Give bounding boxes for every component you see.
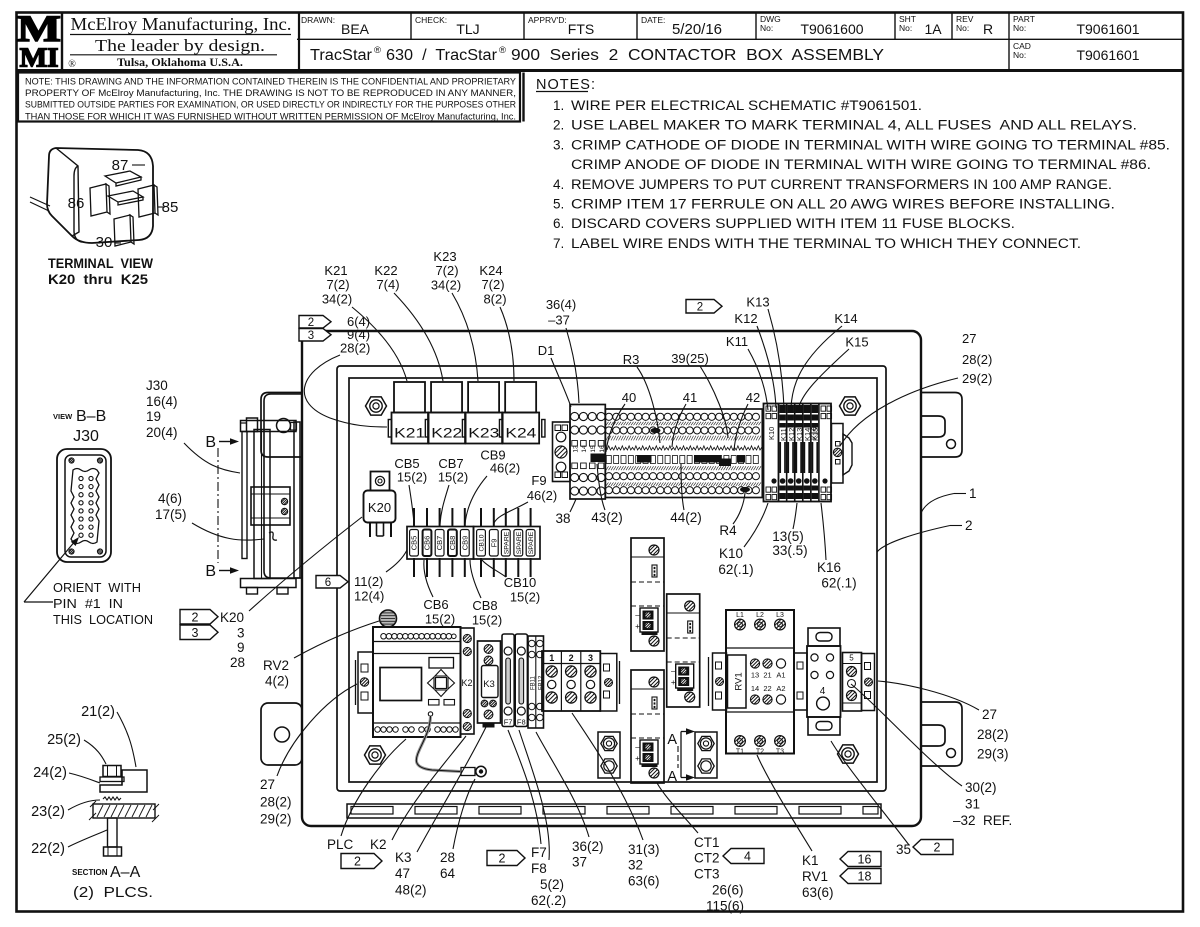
svg-text:1.: 1.: [553, 98, 564, 113]
svg-text:87: 87: [112, 157, 129, 174]
svg-text:14: 14: [751, 684, 759, 693]
svg-text:27: 27: [962, 331, 976, 346]
svg-text:FB11: FB11: [531, 675, 537, 690]
svg-text:CB6: CB6: [423, 597, 448, 612]
svg-text:CRIMP CATHODE OF DIODE IN TERM: CRIMP CATHODE OF DIODE IN TERMINAL WITH …: [571, 137, 1170, 152]
svg-text:CT2: CT2: [694, 851, 720, 866]
svg-text:K14: K14: [834, 311, 857, 326]
svg-text:No:: No:: [899, 23, 912, 33]
svg-text:USE LABEL MAKER TO MARK TERMIN: USE LABEL MAKER TO MARK TERMINAL 4, ALL …: [571, 118, 1137, 133]
svg-text:11(2): 11(2): [354, 574, 383, 589]
svg-text:K2: K2: [461, 678, 472, 688]
svg-text:31(3): 31(3): [628, 842, 660, 857]
svg-text:41: 41: [683, 390, 697, 405]
svg-text:1A: 1A: [924, 21, 942, 37]
svg-text:T9061601: T9061601: [1076, 47, 1139, 63]
svg-text:44(2): 44(2): [670, 510, 702, 525]
svg-text:28: 28: [440, 850, 455, 865]
svg-text:40: 40: [622, 390, 636, 405]
svg-text:CB9: CB9: [460, 536, 469, 551]
svg-text:A: A: [667, 732, 677, 748]
svg-text:NOTES:: NOTES:: [536, 77, 596, 93]
svg-text:–: –: [635, 743, 640, 752]
svg-text:28(2): 28(2): [977, 727, 1009, 742]
svg-text:26(6): 26(6): [712, 883, 744, 898]
svg-text:F8: F8: [517, 718, 526, 727]
svg-text:CRIMP ITEM 17 FERRULE ON ALL 2: CRIMP ITEM 17 FERRULE ON ALL 20 AWG WIRE…: [571, 197, 1115, 212]
svg-text:RV1: RV1: [734, 672, 745, 690]
svg-text:PROPERTY OF McElroy Manufactur: PROPERTY OF McElroy Manufacturing, Inc. …: [25, 88, 516, 98]
svg-text:No:: No:: [1013, 50, 1026, 60]
svg-text:63(6): 63(6): [802, 885, 834, 900]
svg-text:T9061601: T9061601: [1076, 21, 1139, 37]
svg-text:18: 18: [858, 870, 872, 884]
svg-text:K15: K15: [845, 335, 868, 350]
svg-text:2: 2: [499, 852, 506, 866]
svg-text:T9061600: T9061600: [800, 21, 863, 37]
svg-text:L2: L2: [756, 612, 764, 619]
svg-text:MI: MI: [20, 43, 59, 73]
svg-text:D1: D1: [538, 343, 555, 358]
svg-text:27: 27: [260, 777, 275, 792]
svg-text:2: 2: [569, 653, 574, 663]
svg-text:7(2): 7(2): [435, 263, 458, 278]
svg-text:4: 4: [744, 850, 751, 864]
svg-text:A–A: A–A: [110, 864, 141, 881]
svg-text:62(.2): 62(.2): [531, 893, 566, 908]
svg-text:No:: No:: [760, 23, 773, 33]
svg-text:®: ®: [499, 45, 506, 56]
svg-text:7(4): 7(4): [376, 277, 399, 292]
svg-text:CB10: CB10: [504, 575, 537, 590]
svg-text:62(.1): 62(.1): [718, 562, 753, 577]
svg-text:(2) PLCS.: (2) PLCS.: [73, 884, 153, 901]
svg-text:13(5): 13(5): [772, 529, 804, 544]
svg-text:R4: R4: [719, 523, 737, 538]
svg-text:3.: 3.: [553, 137, 564, 152]
svg-text:1: 1: [969, 486, 977, 501]
svg-text:13: 13: [572, 445, 579, 453]
svg-text:K20: K20: [368, 500, 391, 515]
svg-text:32: 32: [628, 858, 643, 873]
svg-text:®: ®: [374, 45, 381, 56]
svg-text:1: 1: [549, 653, 554, 663]
svg-text:19: 19: [146, 409, 161, 424]
svg-text:CHECK:: CHECK:: [415, 15, 447, 25]
svg-text:15(2): 15(2): [472, 613, 502, 628]
svg-text:12(4): 12(4): [354, 589, 384, 604]
svg-text:DRAWN:: DRAWN:: [301, 15, 335, 25]
svg-text:13: 13: [751, 671, 759, 680]
svg-text:3: 3: [192, 626, 199, 640]
svg-text:K23: K23: [468, 426, 499, 441]
svg-text:–: –: [635, 611, 640, 620]
svg-text:L3: L3: [776, 612, 784, 619]
svg-text:K16: K16: [810, 427, 819, 440]
svg-text:2.: 2.: [553, 118, 564, 133]
svg-text:46(2): 46(2): [527, 488, 557, 503]
svg-text:R3: R3: [623, 352, 640, 367]
svg-text:CB10: CB10: [479, 534, 486, 551]
svg-text:VIEW: VIEW: [53, 412, 73, 421]
svg-text:22(2): 22(2): [31, 841, 65, 857]
svg-text:34(2): 34(2): [431, 278, 461, 293]
svg-text:+: +: [635, 622, 640, 631]
svg-text:K23: K23: [433, 249, 456, 264]
svg-text:3: 3: [308, 330, 314, 342]
svg-text:CT3: CT3: [694, 867, 720, 882]
svg-text:46(2): 46(2): [490, 461, 520, 476]
svg-text:4(6): 4(6): [158, 491, 182, 506]
svg-text:15(2): 15(2): [425, 612, 455, 627]
svg-text:17(5): 17(5): [155, 507, 187, 522]
svg-text:K21: K21: [324, 263, 347, 278]
svg-text:64: 64: [440, 866, 456, 881]
svg-text:22: 22: [763, 684, 771, 693]
svg-text:5/20/16: 5/20/16: [672, 21, 722, 38]
svg-text:K20 thru K25: K20 thru K25: [48, 272, 149, 287]
svg-text:CB7: CB7: [435, 536, 444, 551]
svg-text:CT1: CT1: [694, 835, 720, 850]
svg-text:B: B: [205, 563, 216, 580]
svg-text:115(6): 115(6): [706, 899, 744, 914]
svg-text:–: –: [671, 667, 676, 676]
svg-text:K24: K24: [479, 263, 502, 278]
svg-text:K10: K10: [767, 427, 776, 440]
svg-text:–32 REF.: –32 REF.: [953, 813, 1012, 828]
svg-text:86: 86: [68, 195, 85, 212]
svg-text:7(2): 7(2): [326, 277, 349, 292]
svg-text:4: 4: [820, 686, 826, 697]
svg-text:DISCARD COVERS SUPPLIED WITH I: DISCARD COVERS SUPPLIED WITH ITEM 11 FUS…: [571, 216, 1015, 231]
svg-text:16: 16: [858, 853, 872, 867]
svg-text:48(2): 48(2): [395, 883, 427, 898]
svg-text:30(2): 30(2): [965, 780, 997, 795]
svg-text:CB6: CB6: [423, 536, 432, 551]
svg-text:PLC: PLC: [327, 837, 354, 852]
svg-text:APPRV'D:: APPRV'D:: [528, 15, 567, 25]
svg-text:T2: T2: [756, 749, 764, 756]
svg-text:2: 2: [308, 317, 314, 329]
svg-text:2: 2: [934, 841, 941, 855]
svg-text:RV2: RV2: [263, 658, 289, 673]
svg-text:14: 14: [581, 445, 588, 453]
svg-text:2: 2: [697, 301, 703, 313]
svg-text:THIS LOCATION: THIS LOCATION: [53, 612, 153, 627]
svg-text:28(2): 28(2): [260, 795, 292, 810]
svg-text:4(2): 4(2): [265, 674, 289, 689]
svg-text:A: A: [667, 769, 677, 785]
svg-text:B: B: [205, 434, 216, 451]
svg-text:Tulsa, Oklahoma U.S.A.: Tulsa, Oklahoma U.S.A.: [117, 57, 243, 69]
svg-text:21: 21: [763, 671, 771, 680]
svg-text:K13: K13: [746, 295, 769, 310]
svg-text:36(4): 36(4): [546, 297, 576, 312]
svg-text:RV1: RV1: [802, 869, 828, 884]
svg-text:BEA: BEA: [341, 21, 370, 37]
svg-text:K21: K21: [394, 426, 425, 441]
svg-text:SPARE: SPARE: [503, 531, 510, 554]
svg-text:No:: No:: [956, 23, 969, 33]
svg-text:2: 2: [965, 518, 973, 533]
svg-text:47: 47: [395, 866, 410, 881]
svg-text:2: 2: [192, 610, 199, 624]
svg-text:15(2): 15(2): [397, 470, 427, 485]
svg-text:28(2): 28(2): [340, 341, 370, 356]
svg-text:T3: T3: [776, 749, 784, 756]
svg-text:A2: A2: [776, 684, 785, 693]
svg-text:F7: F7: [531, 845, 547, 860]
svg-text:15: 15: [590, 445, 597, 453]
svg-text:29(2): 29(2): [260, 812, 292, 827]
svg-text:16(4): 16(4): [146, 394, 178, 409]
svg-text:37: 37: [572, 855, 587, 870]
svg-text:K3: K3: [483, 679, 495, 690]
svg-text:42: 42: [746, 390, 760, 405]
svg-text:CB8: CB8: [472, 598, 497, 613]
svg-text:K20: K20: [220, 610, 244, 625]
svg-text:NOTE: THIS DRAWING AND THE INF: NOTE: THIS DRAWING AND THE INFORMATION C…: [25, 77, 516, 87]
svg-text:6: 6: [325, 577, 331, 589]
svg-text:6.: 6.: [553, 216, 564, 231]
svg-text:B–B: B–B: [76, 408, 106, 425]
svg-text:33(.5): 33(.5): [772, 543, 807, 558]
svg-text:36(2): 36(2): [572, 839, 604, 854]
svg-text:No:: No:: [1013, 23, 1026, 33]
svg-text:15(2): 15(2): [438, 470, 468, 485]
svg-text:WIRE PER ELECTRICAL SCHEMATIC: WIRE PER ELECTRICAL SCHEMATIC #T9061501.: [571, 98, 922, 113]
svg-text:SUBMITTED OUTSIDE PARTIES FOR: SUBMITTED OUTSIDE PARTIES FOR EXAMINATIO…: [25, 100, 516, 110]
svg-text:28(2): 28(2): [962, 352, 992, 367]
svg-text:630 / TracStar: 630 / TracStar: [386, 47, 497, 64]
svg-text:F7: F7: [504, 718, 513, 727]
svg-text:SECTION: SECTION: [72, 868, 108, 877]
svg-text:24(2): 24(2): [33, 765, 67, 781]
svg-text:F9: F9: [531, 473, 546, 488]
svg-text:20(4): 20(4): [146, 425, 178, 440]
svg-text:5: 5: [849, 654, 854, 663]
svg-text:8(2): 8(2): [483, 292, 506, 307]
svg-text:5.: 5.: [553, 197, 564, 212]
svg-text:3: 3: [588, 653, 593, 663]
svg-text:L1: L1: [736, 612, 744, 619]
svg-text:28: 28: [230, 655, 245, 670]
svg-text:K3: K3: [395, 850, 412, 865]
svg-text:K22: K22: [374, 263, 397, 278]
svg-text:21(2): 21(2): [81, 704, 115, 720]
svg-text:3: 3: [237, 626, 245, 641]
svg-text:62(.1): 62(.1): [821, 576, 856, 591]
svg-text:27: 27: [982, 707, 997, 722]
svg-text:4.: 4.: [553, 177, 564, 192]
svg-text:SPARE: SPARE: [516, 531, 523, 554]
svg-text:J30: J30: [73, 428, 99, 445]
svg-text:+: +: [671, 678, 676, 687]
svg-text:The leader by design.: The leader by design.: [95, 36, 265, 55]
svg-text:R: R: [983, 21, 993, 37]
svg-text:23(2): 23(2): [31, 804, 65, 820]
svg-text:K1: K1: [802, 853, 819, 868]
svg-text:TracStar: TracStar: [310, 47, 372, 64]
svg-text:34(2): 34(2): [322, 292, 352, 307]
svg-text:31: 31: [965, 797, 980, 812]
svg-text:K11: K11: [726, 334, 748, 349]
svg-text:K16: K16: [817, 560, 841, 575]
svg-text:38: 38: [555, 511, 570, 526]
svg-text:15(2): 15(2): [510, 590, 540, 605]
svg-text:DATE:: DATE:: [641, 15, 665, 25]
svg-text:J30: J30: [146, 378, 168, 393]
svg-text:25(2): 25(2): [47, 732, 81, 748]
svg-text:7.: 7.: [553, 236, 564, 251]
svg-text:TERMINAL VIEW: TERMINAL VIEW: [48, 256, 153, 271]
svg-text:K22: K22: [431, 426, 462, 441]
svg-text:CB5: CB5: [410, 536, 419, 551]
svg-text:–37: –37: [548, 313, 570, 328]
svg-text:PIN #1 IN: PIN #1 IN: [53, 596, 123, 611]
svg-text:TLJ: TLJ: [456, 21, 479, 37]
svg-text:29(3): 29(3): [977, 747, 1009, 762]
svg-text:FTS: FTS: [568, 21, 594, 37]
svg-text:K12: K12: [734, 311, 757, 326]
svg-text:900 Series 2 CONTACTOR BOX: 900 Series 2 CONTACTOR BOX ASSEMBLY: [511, 47, 884, 64]
svg-text:2: 2: [354, 855, 361, 869]
svg-text:CB8: CB8: [448, 536, 457, 551]
svg-text:7(2): 7(2): [481, 277, 504, 292]
svg-text:REMOVE JUMPERS TO PUT CURRENT: REMOVE JUMPERS TO PUT CURRENT TRANSFORME…: [571, 177, 1112, 192]
svg-text:+: +: [635, 754, 640, 763]
svg-text:®: ®: [68, 59, 76, 70]
svg-text:K10: K10: [719, 546, 743, 561]
svg-text:39(25): 39(25): [671, 351, 709, 366]
svg-text:A1: A1: [776, 671, 785, 680]
svg-text:T1: T1: [736, 749, 744, 756]
svg-text:5(2): 5(2): [540, 877, 564, 892]
svg-text:THAN THOSE FOR WHICH IT WAS FU: THAN THOSE FOR WHICH IT WAS FURNISHED WI…: [25, 111, 516, 121]
svg-text:63(6): 63(6): [628, 874, 660, 889]
svg-text:SPARE: SPARE: [528, 531, 535, 554]
svg-text:9: 9: [237, 640, 245, 655]
svg-text:F8: F8: [531, 861, 547, 876]
svg-text:K2: K2: [370, 837, 387, 852]
svg-text:F9: F9: [489, 539, 498, 548]
svg-text:43(2): 43(2): [591, 510, 623, 525]
svg-text:McElroy Manufacturing, Inc.: McElroy Manufacturing, Inc.: [71, 14, 292, 34]
svg-text:LABEL WIRE ENDS WITH THE TERMI: LABEL WIRE ENDS WITH THE TERMINAL TO WHI…: [571, 236, 1081, 251]
svg-text:K24: K24: [505, 426, 536, 441]
svg-text:29(2): 29(2): [962, 371, 992, 386]
svg-text:CRIMP ANODE OF DIODE IN TERMIN: CRIMP ANODE OF DIODE IN TERMINAL WITH WI…: [571, 157, 1151, 172]
svg-text:ORIENT WITH: ORIENT WITH: [53, 580, 141, 595]
